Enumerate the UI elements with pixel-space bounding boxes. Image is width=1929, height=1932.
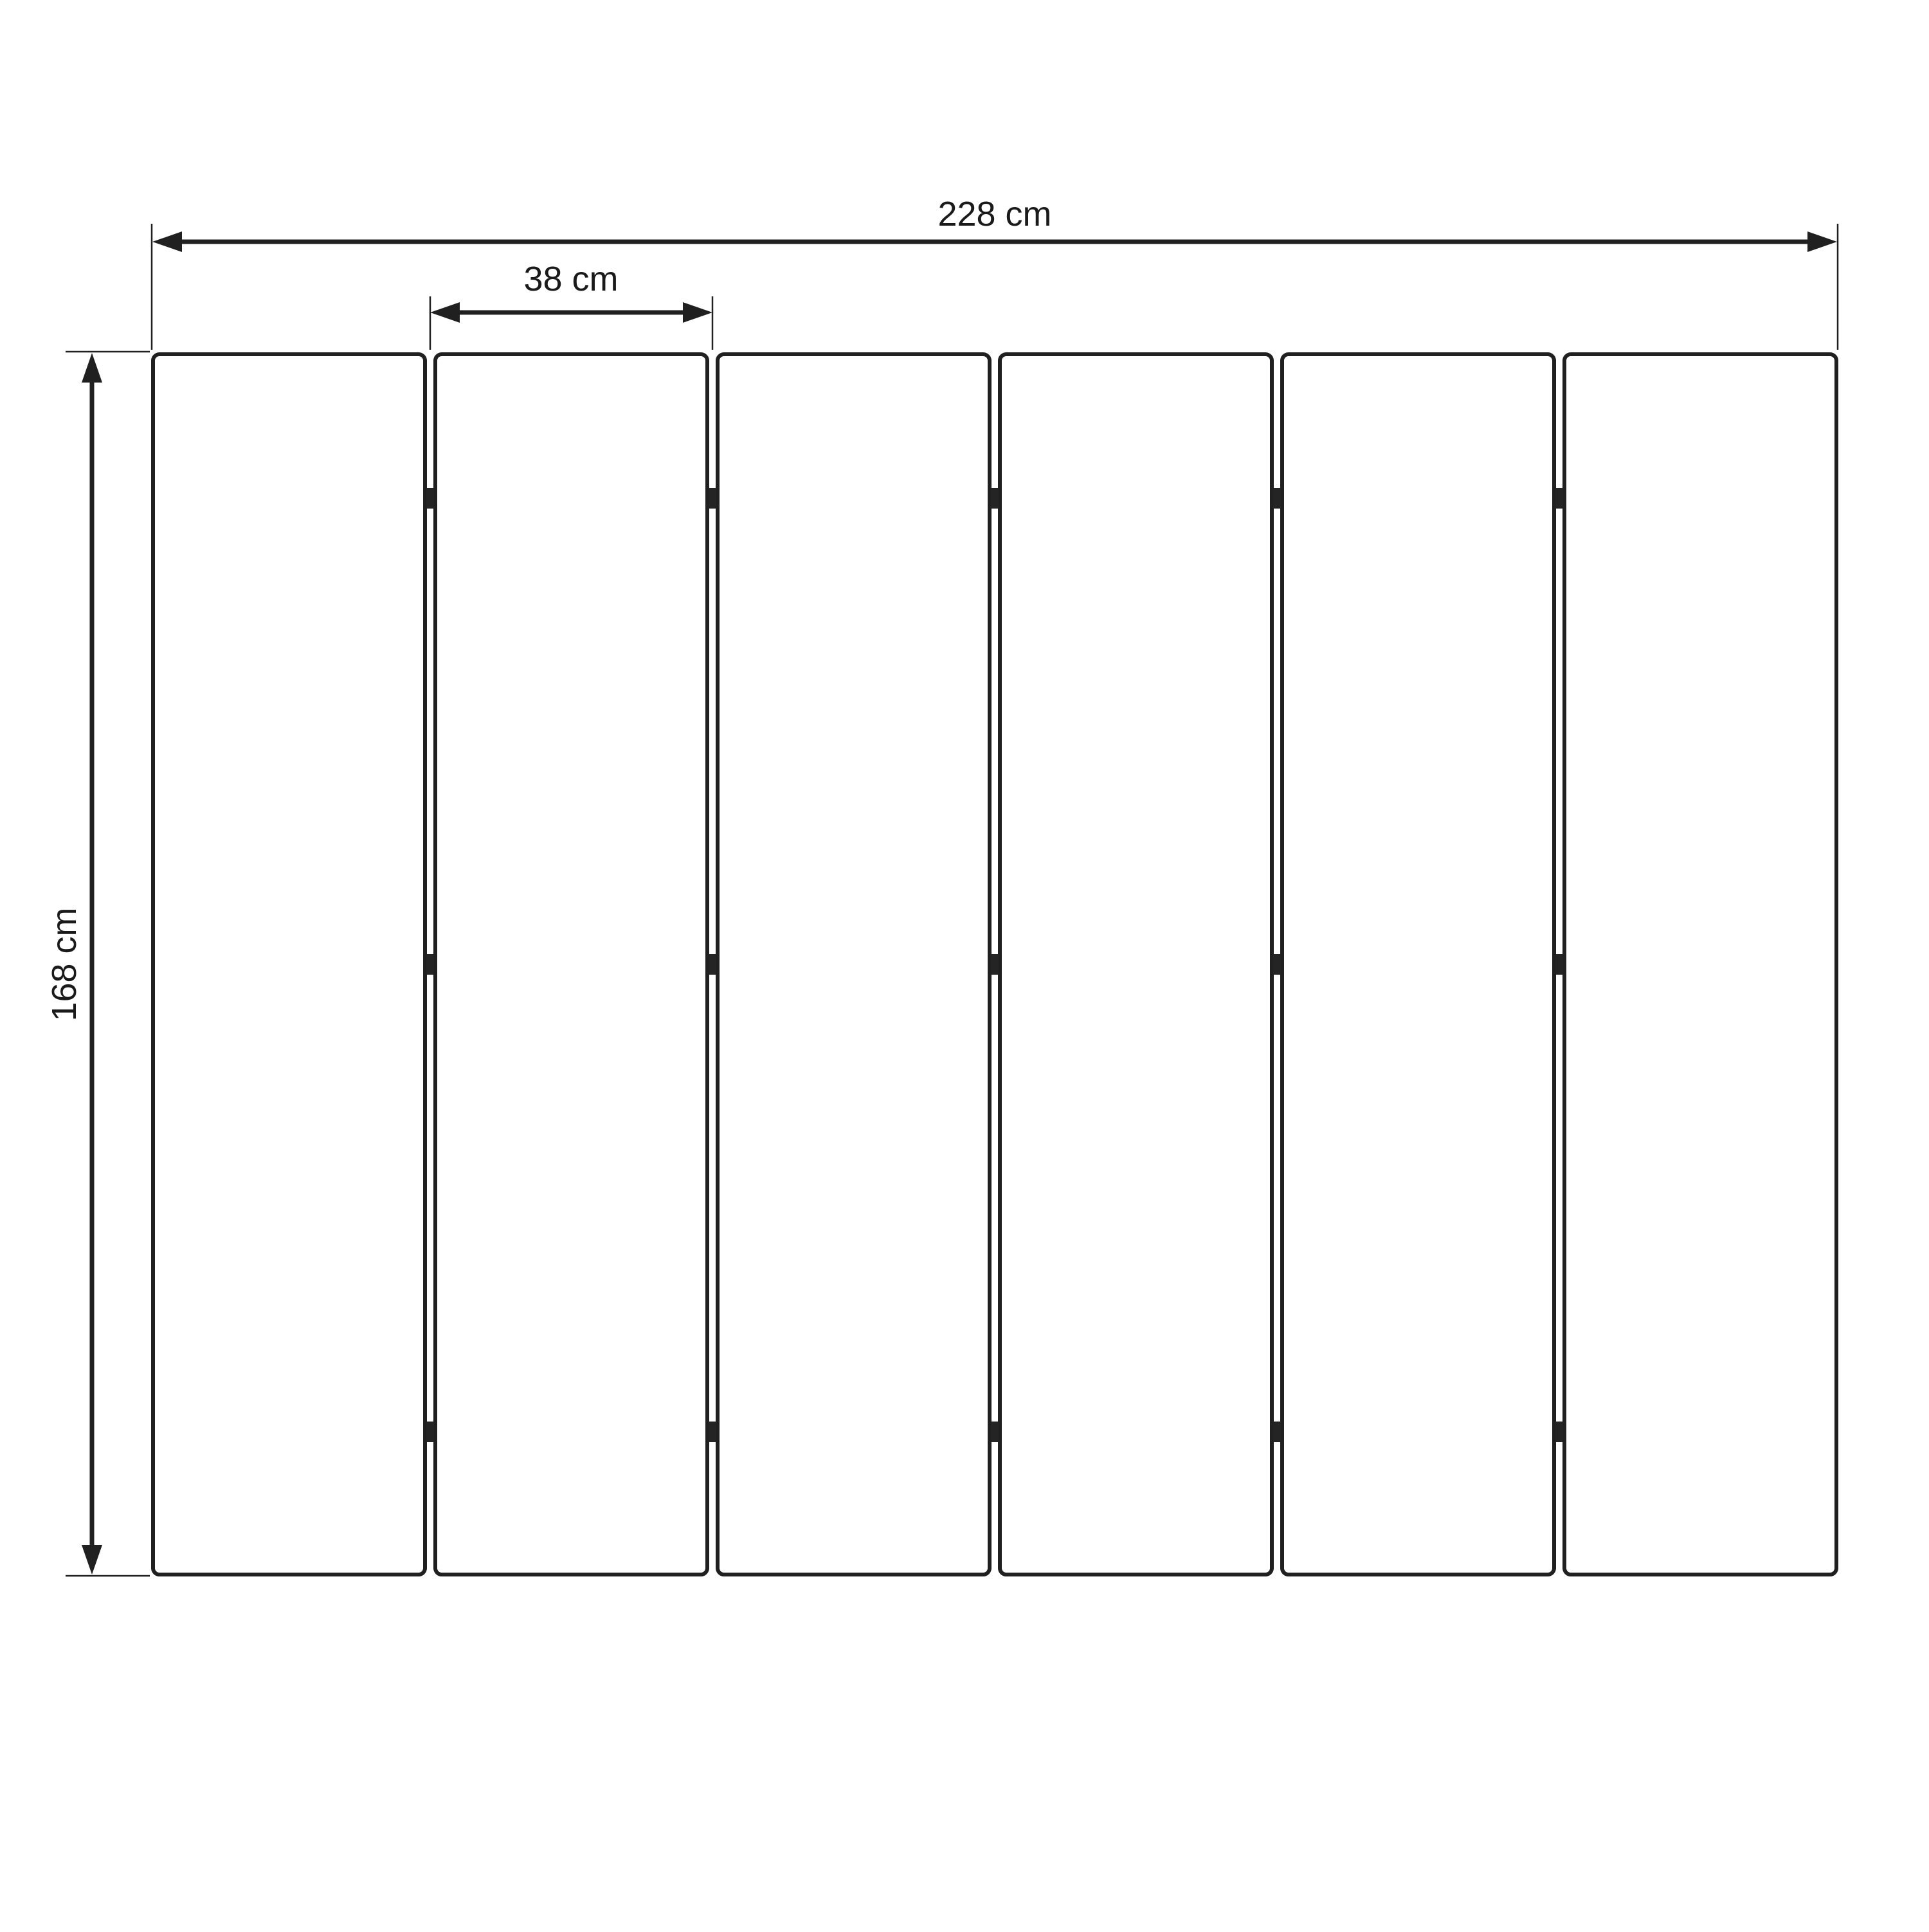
total-width-label: 228 cm [937, 195, 1051, 233]
hinge-gap4-top [1273, 488, 1281, 509]
hinge-gap1-bottom [426, 1422, 434, 1442]
hinge-gap1-top [426, 488, 434, 509]
hinge-gap5-top [1555, 488, 1563, 509]
panel-width-label: 38 cm [523, 260, 618, 298]
diagram-canvas: 228 cm 38 cm 168 cm [0, 0, 1929, 1929]
panel-1 [153, 354, 425, 1575]
hinge-gap2-bottom [709, 1422, 716, 1442]
dimension-drawing-svg: 228 cm 38 cm 168 cm [0, 0, 1929, 1929]
hinge-gap1-middle [426, 954, 434, 975]
hinge-gap4-bottom [1273, 1422, 1281, 1442]
panel-3 [718, 354, 990, 1575]
panel-6 [1564, 354, 1836, 1575]
hinge-gap2-top [709, 488, 716, 509]
hinge-gap3-top [991, 488, 999, 509]
height-label: 168 cm [45, 907, 84, 1021]
hinge-gap4-middle [1273, 954, 1281, 975]
hinge-gap5-middle [1555, 954, 1563, 975]
hinge-gap5-bottom [1555, 1422, 1563, 1442]
panel-2 [435, 354, 707, 1575]
hinge-gap2-middle [709, 954, 716, 975]
hinge-gap3-bottom [991, 1422, 999, 1442]
hinge-gap3-middle [991, 954, 999, 975]
panel-4 [1000, 354, 1272, 1575]
panel-5 [1282, 354, 1554, 1575]
